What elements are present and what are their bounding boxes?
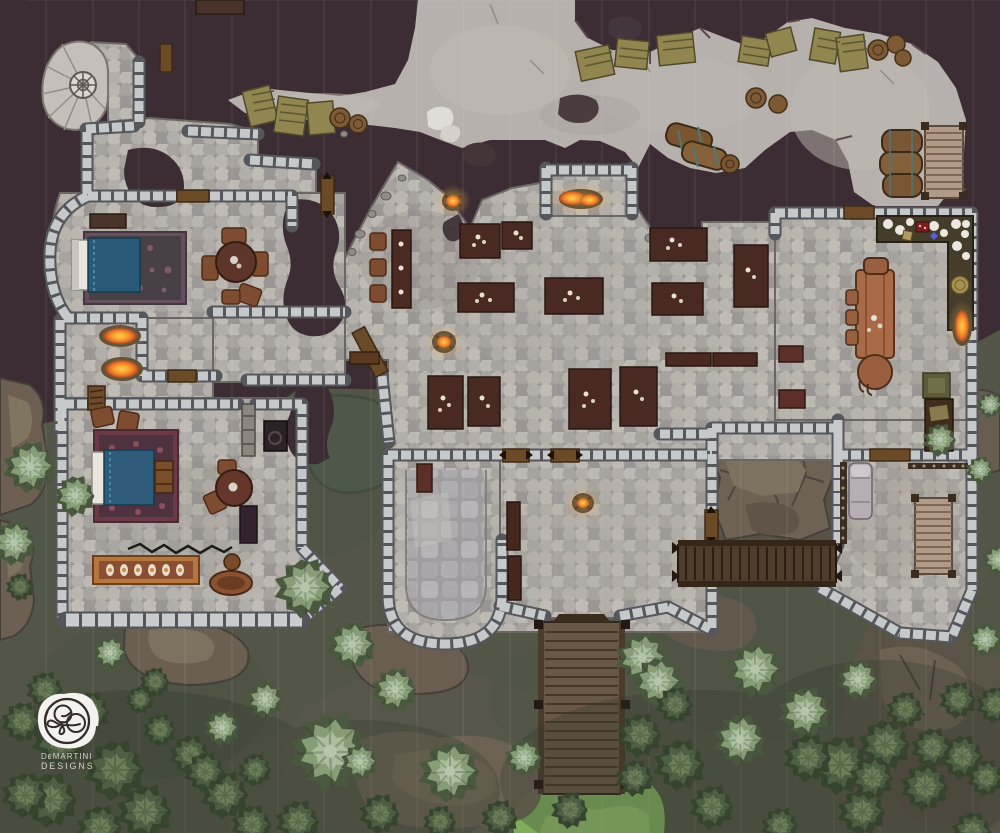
svg-text:DᴇMARTINI: DᴇMARTINI	[41, 752, 92, 761]
svg-text:DESIGNS: DESIGNS	[41, 761, 95, 771]
